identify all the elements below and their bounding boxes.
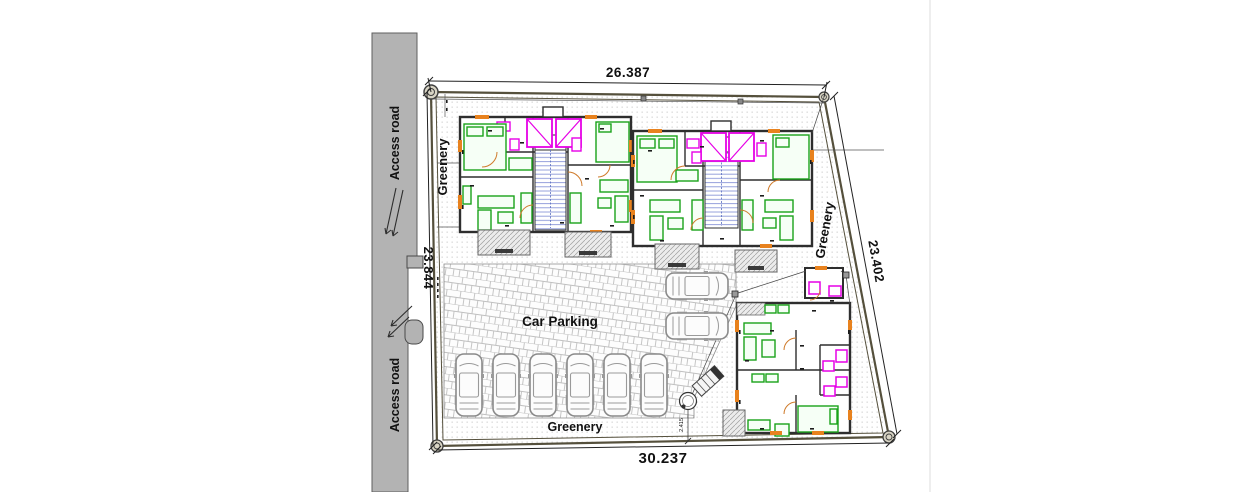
car: [666, 311, 728, 341]
dimension-circle-offset: 2.415: [679, 418, 685, 432]
dimension-right: 23.402: [865, 239, 887, 284]
car: [528, 354, 558, 416]
entrance-porch: [723, 410, 745, 436]
survey-node: [732, 291, 738, 297]
staircase: [535, 135, 566, 230]
survey-node: [843, 272, 849, 278]
car: [666, 271, 728, 301]
car: [565, 354, 595, 416]
car: [491, 354, 521, 416]
car: [602, 354, 632, 416]
greenery-label-bottom: Greenery: [548, 420, 603, 434]
utility-node: [738, 99, 743, 104]
utility-node: [641, 96, 646, 101]
greenery-label-left: Greenery: [435, 138, 450, 196]
dimension-top: 26.387: [606, 65, 650, 80]
boundary-pier: [407, 256, 423, 268]
terrace: [737, 303, 765, 315]
dimension-bottom: 30.237: [639, 450, 688, 467]
access-road-label-bottom: Access road: [388, 358, 402, 432]
floor-plan-canvas: Access road Access road: [0, 0, 1254, 492]
roof-vent: [543, 107, 563, 117]
dimension-left: 23.844: [421, 247, 436, 290]
roof-vent: [711, 121, 731, 131]
access-road: Access road Access road: [372, 33, 423, 492]
site-plan-drawing: Access road Access road: [0, 0, 1254, 492]
access-road-label-top: Access road: [388, 106, 402, 180]
car: [454, 354, 484, 416]
car-parking-label: Car Parking: [522, 314, 598, 329]
boundary-pier: [405, 320, 423, 344]
car: [639, 354, 669, 416]
